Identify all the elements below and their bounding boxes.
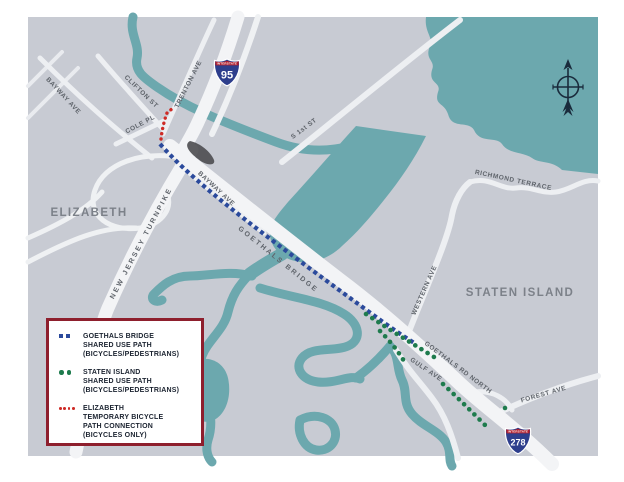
legend-item-label: ELIZABETH TEMPORARY BICYCLE PATH CONNECT… bbox=[83, 404, 163, 440]
legend-line: GOETHALS BRIDGE bbox=[83, 332, 179, 341]
legend-line: PATH CONNECTION bbox=[83, 422, 163, 431]
legend-line: TEMPORARY BICYCLE bbox=[83, 413, 163, 422]
legend-box: GOETHALS BRIDGE SHARED USE PATH (BICYCLE… bbox=[46, 318, 204, 446]
place-label-staten-island: STATEN ISLAND bbox=[466, 287, 575, 299]
legend-line: (BICYCLES/PEDESTRIANS) bbox=[83, 350, 179, 359]
shield-number: 278 bbox=[510, 438, 525, 448]
map-page: BAYWAY AVE CLIFTON ST TRENTON AVE COLE P… bbox=[0, 0, 624, 482]
legend-line: ELIZABETH bbox=[83, 404, 163, 413]
legend-item-goethals-bridge-path: GOETHALS BRIDGE SHARED USE PATH (BICYCLE… bbox=[59, 332, 193, 359]
shield-banner: INTERSTATE bbox=[217, 61, 237, 65]
blue-dash-icon bbox=[59, 332, 83, 359]
legend-item-elizabeth-path: ELIZABETH TEMPORARY BICYCLE PATH CONNECT… bbox=[59, 404, 193, 440]
legend-item-label: STATEN ISLAND SHARED USE PATH (BICYCLES/… bbox=[83, 368, 179, 395]
green-path-dot bbox=[503, 406, 508, 411]
green-dot-icon bbox=[59, 368, 83, 395]
legend-line: SHARED USE PATH bbox=[83, 377, 179, 386]
legend-line: STATEN ISLAND bbox=[83, 368, 179, 377]
legend-line: (BICYCLES ONLY) bbox=[83, 431, 163, 440]
shield-number: 95 bbox=[221, 70, 233, 82]
red-dot-icon bbox=[59, 404, 83, 440]
place-label-elizabeth: ELIZABETH bbox=[50, 207, 127, 219]
legend-line: SHARED USE PATH bbox=[83, 341, 179, 350]
shield-banner: INTERSTATE bbox=[508, 429, 528, 433]
legend-item-staten-island-path: STATEN ISLAND SHARED USE PATH (BICYCLES/… bbox=[59, 368, 193, 395]
legend-line: (BICYCLES/PEDESTRIANS) bbox=[83, 386, 179, 395]
legend-item-label: GOETHALS BRIDGE SHARED USE PATH (BICYCLE… bbox=[83, 332, 179, 359]
